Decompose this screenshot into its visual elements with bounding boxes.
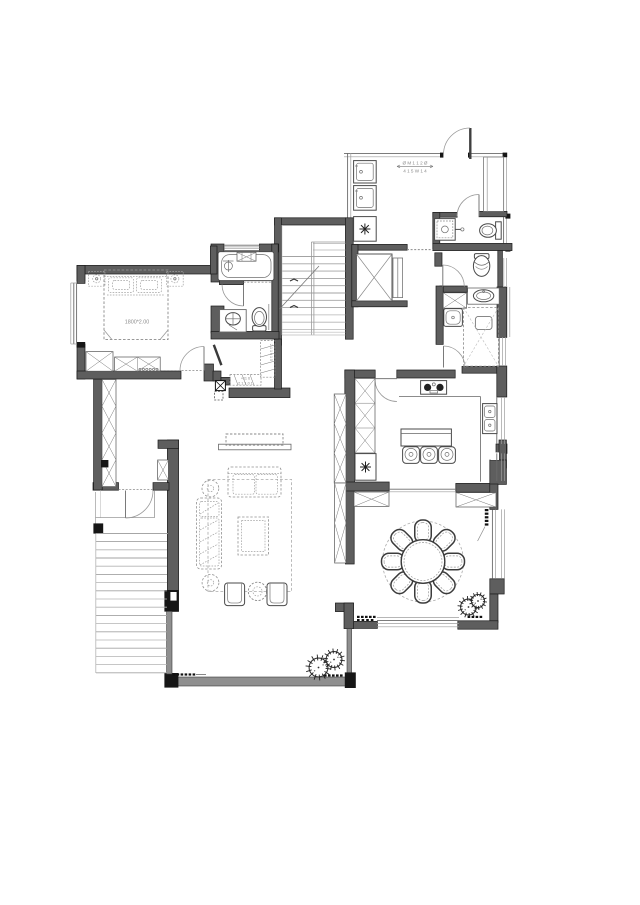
svg-text:×11 6: ×11 6 (241, 377, 250, 381)
svg-text:2 1 1 0 1: 2 1 1 0 1 (238, 381, 253, 385)
svg-text:1800*2.00: 1800*2.00 (125, 320, 150, 326)
svg-text:Ø M 1 1 2 Ø: Ø M 1 1 2 Ø (402, 161, 427, 166)
svg-text:4 1 5 W 1 4: 4 1 5 W 1 4 (403, 169, 427, 174)
svg-text:2 1 1 0 1 5: 2 1 1 0 1 5 (269, 344, 273, 361)
